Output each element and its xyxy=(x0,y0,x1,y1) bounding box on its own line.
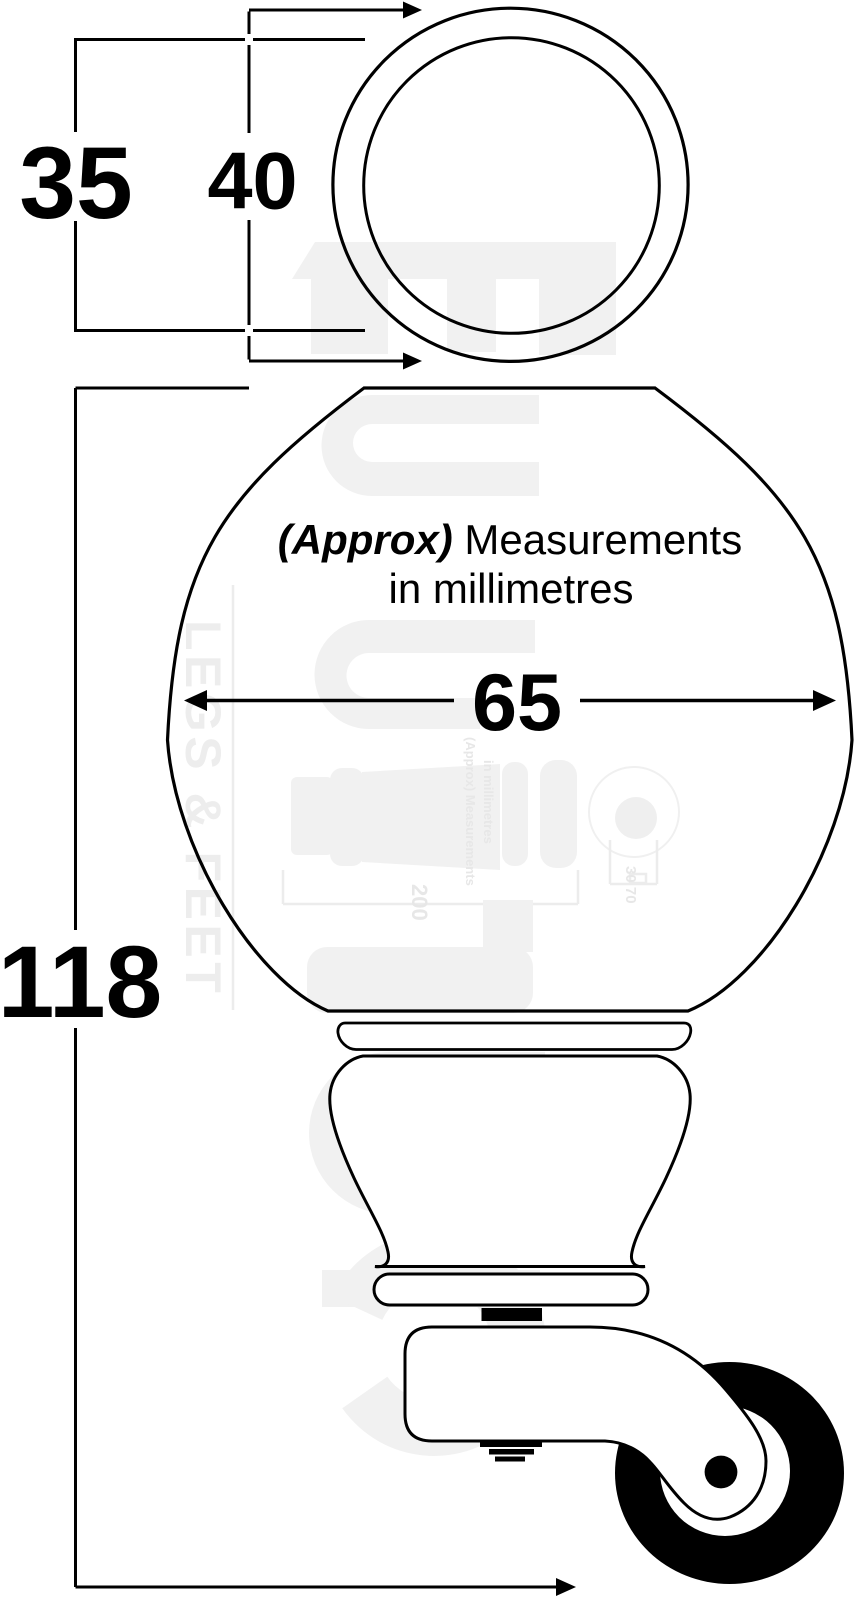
svg-text:in millimetres: in millimetres xyxy=(388,565,633,612)
svg-text:30 70: 30 70 xyxy=(622,866,639,904)
svg-text:40: 40 xyxy=(207,137,297,227)
svg-text:LEGS & FEET: LEGS & FEET xyxy=(175,620,231,997)
svg-text:65: 65 xyxy=(472,658,562,748)
svg-text:in millimetres: in millimetres xyxy=(481,760,496,844)
svg-text:118: 118 xyxy=(0,925,162,1039)
svg-text:200: 200 xyxy=(407,884,432,921)
svg-text:35: 35 xyxy=(19,126,132,240)
svg-text:(Approx) Measurements: (Approx) Measurements xyxy=(463,737,478,886)
svg-text:(Approx) Measurements: (Approx) Measurements xyxy=(278,516,742,563)
